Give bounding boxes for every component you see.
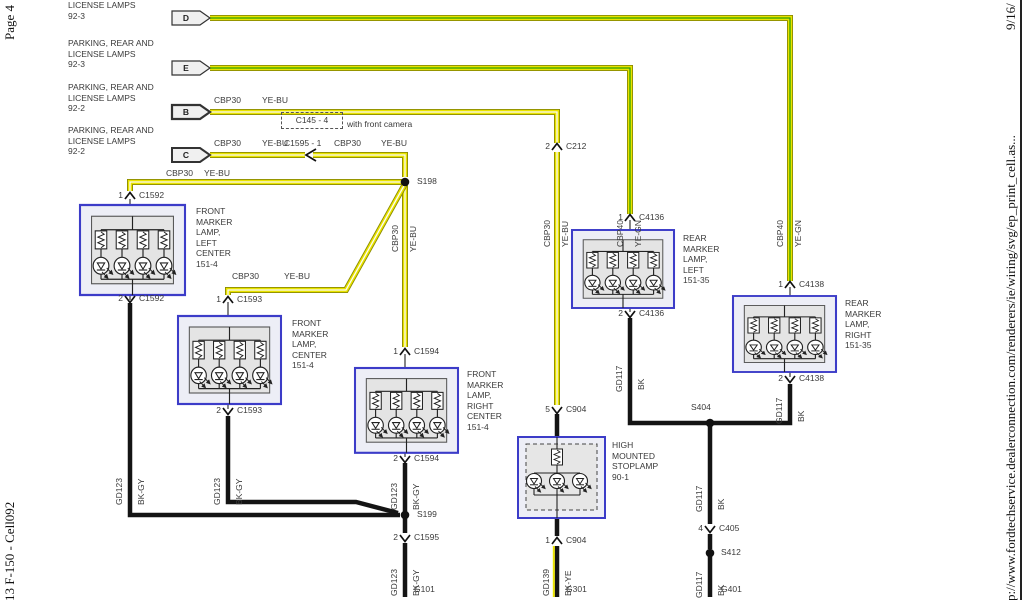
wire-label-circuit: CBP30: [542, 220, 553, 247]
wire-label-circuit: CBP30: [166, 168, 193, 179]
connector-label-c1594-2: C1594: [414, 453, 439, 464]
circuit-ref-e: PARKING, REAR AND LICENSE LAMPS 92-3: [68, 38, 154, 70]
wire-label-circuit: CBP30: [334, 138, 361, 149]
connector-label-c904-5: C904: [566, 404, 586, 415]
pin-number: 1: [769, 279, 783, 290]
splice-label-s198: S198: [417, 176, 437, 187]
connector-label-c4136-2: C4136: [639, 308, 664, 319]
wire-label-circuit: GD117: [694, 486, 705, 512]
camera-note-caption: with front camera: [347, 119, 412, 130]
pin-number: 4: [689, 523, 703, 534]
wire-label-color: YE-BU: [262, 138, 288, 149]
wire-label-circuit: GD123: [212, 478, 223, 505]
connector-c-tag: C: [172, 148, 200, 162]
wire-c-cbp30-ye-bu-right: [313, 155, 405, 177]
wire-label-color: BK-GY: [234, 479, 245, 505]
connector-label-c1593-1: C1593: [237, 294, 262, 305]
wire-label-circuit: CBP30: [232, 271, 259, 282]
pin-number: 2: [207, 405, 221, 416]
wire-gd139-bk-ye: [554, 546, 557, 597]
label-rear-marker-lamp-right: REAR MARKER LAMP, RIGHT 151-35: [845, 298, 881, 351]
wire-label-color: YE-BU: [381, 138, 407, 149]
high-mounted-stoplamp-box: [518, 437, 605, 518]
front-marker-lamp-left-center-box: [80, 205, 185, 295]
connector-label-c1592-1: C1592: [139, 190, 164, 201]
wire-label-circuit: CBP30: [214, 138, 241, 149]
wire-label-color: YE-BU: [560, 221, 571, 247]
front-marker-lamp-right-center-box: [355, 368, 458, 453]
wire-label-circuit: CBP40: [775, 220, 786, 247]
splice-label-s199: S199: [417, 509, 437, 520]
connector-label-c1595-2: C1595: [414, 532, 439, 543]
page-border-line: [1020, 0, 1022, 600]
rear-marker-lamp-right-box: [733, 296, 836, 372]
wire-label-color: BK-GY: [136, 479, 147, 505]
wire-label-color: BK-YE: [563, 570, 574, 596]
connector-e-tag: E: [172, 61, 200, 75]
pin-number: 2: [609, 308, 623, 319]
wire-label-color: BK: [716, 499, 727, 510]
label-front-marker-lamp-left-center: FRONT MARKER LAMP, LEFT CENTER 151-4: [196, 206, 232, 269]
connector-label-c1594-1: C1594: [414, 346, 439, 357]
pin-number: 1: [384, 346, 398, 357]
connector-label-c904-1: C904: [566, 535, 586, 546]
pin-number: 5: [536, 404, 550, 415]
page-number-sidebar: Page 4: [2, 5, 18, 40]
circuit-ref-b: PARKING, REAR AND LICENSE LAMPS 92-2: [68, 82, 154, 114]
wire-label-circuit: GD123: [389, 569, 400, 596]
connector-label-c1592-2: C1592: [139, 293, 164, 304]
connector-label-c1593-2: C1593: [237, 405, 262, 416]
wire-label-color: BK: [716, 585, 727, 596]
pin-number: 2: [384, 453, 398, 464]
date-sidebar: 9/16/: [1003, 3, 1019, 30]
pin-number: 1: [207, 294, 221, 305]
wire-label-circuit: GD139: [541, 569, 552, 596]
connector-label-c405: C405: [719, 523, 739, 534]
connector-b-tag: B: [172, 105, 200, 119]
circuit-ref-c: PARKING, REAR AND LICENSE LAMPS 92-2: [68, 125, 154, 157]
source-url-sidebar: p://www.fordtechservice.dealerconnection…: [1003, 135, 1019, 600]
pin-number: 2: [769, 373, 783, 384]
wire-label-color: YE-GN: [793, 220, 804, 247]
wire-label-color: YE-BU: [204, 168, 230, 179]
connector-label-c4138-1: C4138: [799, 279, 824, 290]
connector-d-tag: D: [172, 11, 200, 25]
splice-s199-dot: [401, 511, 410, 520]
wire-label-color: BK: [796, 411, 807, 422]
wire-label-color: BK-GY: [411, 484, 422, 510]
connector-label-c212: C212: [566, 141, 586, 152]
wire-label-circuit: CBP40: [615, 220, 626, 247]
splice-s404-dot: [706, 419, 715, 428]
wire-label-circuit: CBP30: [214, 95, 241, 106]
wire-label-circuit: GD123: [114, 478, 125, 505]
label-rear-marker-lamp-left: REAR MARKER LAMP, LEFT 151-35: [683, 233, 719, 286]
label-front-marker-lamp-right-center: FRONT MARKER LAMP, RIGHT CENTER 151-4: [467, 369, 503, 432]
splice-s198-dot: [401, 178, 410, 187]
pin-number: 2: [109, 293, 123, 304]
inline-connector-label: C1595 - 1: [284, 138, 321, 149]
wire-label-color: YE-BU: [284, 271, 310, 282]
wiring-diagram-page: LICENSE LAMPS 92-3 PARKING, REAR AND LIC…: [0, 0, 1024, 600]
wire-label-color: YE-BU: [408, 226, 419, 252]
circuit-ref-d: LICENSE LAMPS 92-3: [68, 0, 136, 21]
source-connector-shapes: [172, 11, 210, 162]
wire-label-circuit: CBP30: [390, 225, 401, 252]
label-high-mounted-stoplamp: HIGH MOUNTED STOPLAMP 90-1: [612, 440, 658, 482]
label-front-marker-lamp-center: FRONT MARKER LAMP, CENTER 151-4: [292, 318, 328, 371]
pin-number: 2: [384, 532, 398, 543]
pin-number: 2: [536, 141, 550, 152]
wire-label-circuit: GD117: [614, 366, 625, 392]
wire-label-circuit: GD117: [694, 572, 705, 598]
pin-number: 1: [109, 190, 123, 201]
connector-label-c4138-2: C4138: [799, 373, 824, 384]
wire-label-color: YE-GN: [633, 220, 644, 247]
wire-label-color: BK-GY: [411, 570, 422, 596]
wire-label-color: BK: [636, 379, 647, 390]
wire-label-circuit: GD117: [774, 398, 785, 424]
wire-label-color: YE-BU: [262, 95, 288, 106]
wire-s198-to-c1592: [130, 182, 405, 191]
front-marker-lamp-center-box: [178, 316, 281, 404]
wire-label-circuit: GD123: [389, 483, 400, 510]
splice-s412-dot: [706, 549, 715, 558]
cell-id-sidebar: 13 F-150 - Cell092: [2, 502, 18, 600]
splice-label-s404: S404: [691, 402, 711, 413]
camera-connector-label: C145 - 4: [281, 115, 343, 126]
splice-label-s412: S412: [721, 547, 741, 558]
pin-number: 1: [536, 535, 550, 546]
